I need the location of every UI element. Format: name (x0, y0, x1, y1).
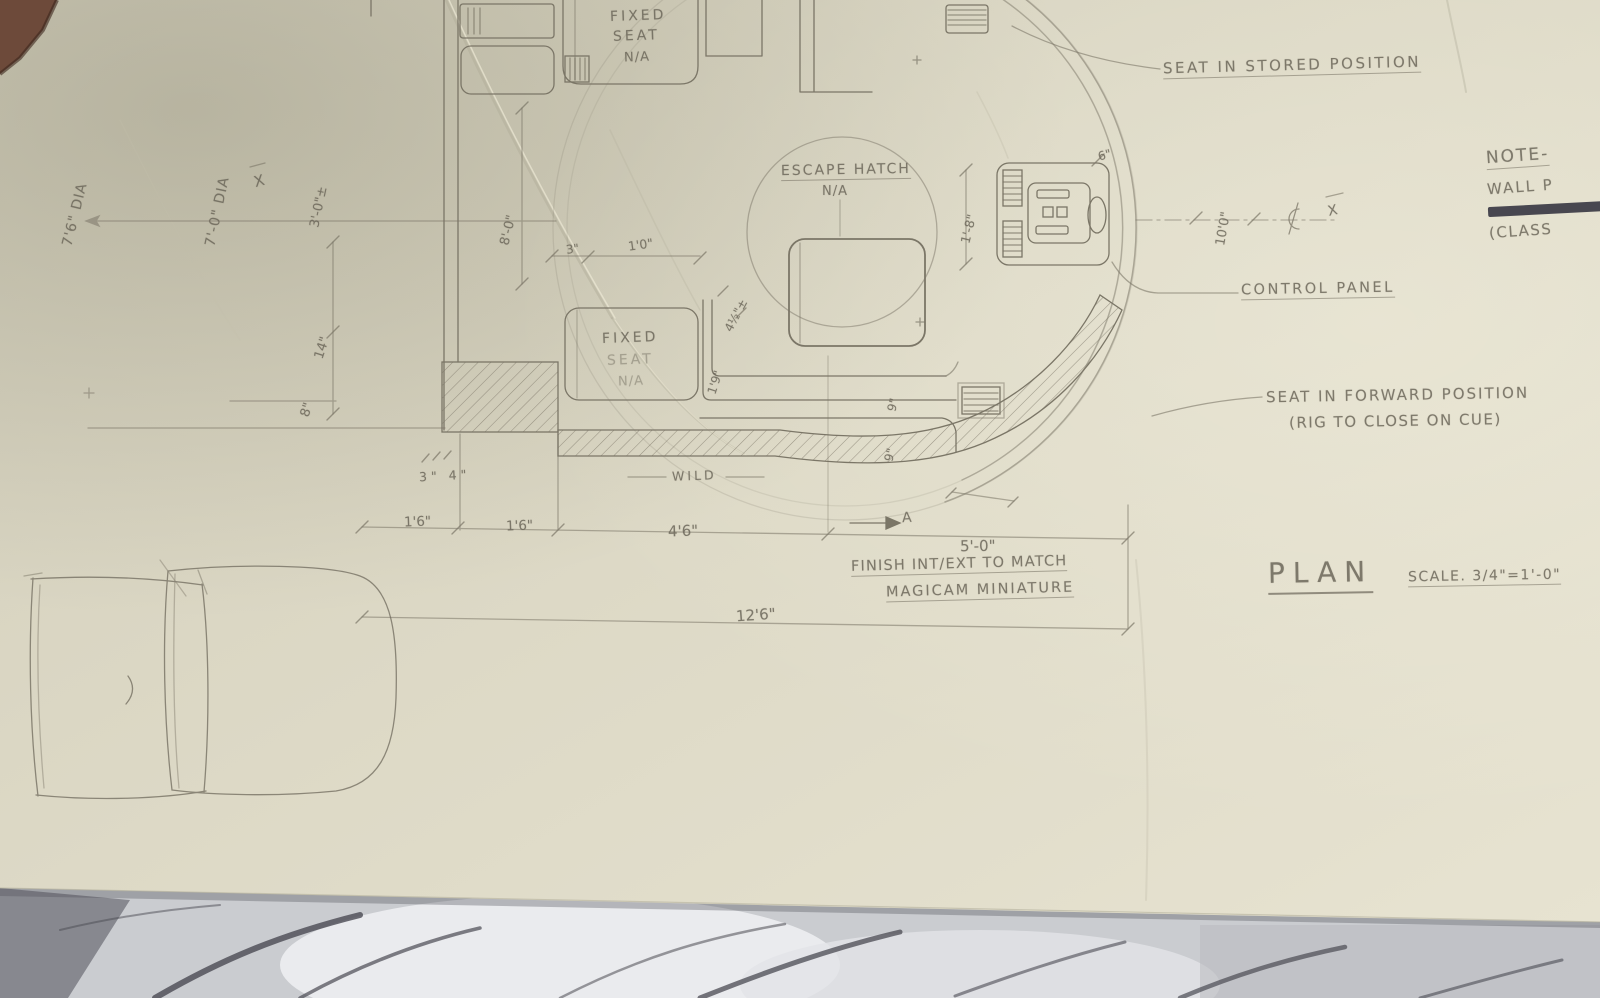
label-fixed-seat-top-2: SEAT (613, 27, 660, 45)
label-seat-forward-2: (RIG TO CLOSE ON CUE) (1289, 410, 1502, 432)
dim-1ft6-b: 1'6" (506, 518, 534, 535)
dim-6in: 6" (1096, 147, 1112, 164)
dim-10ft: 10'0" (1213, 211, 1234, 247)
ink-redaction-bar (1488, 201, 1600, 217)
dim-3in: 3" (565, 241, 580, 257)
dim-9in-upper: 9" (884, 397, 901, 413)
dim-dia-outer: 7'6" DIA (59, 181, 90, 248)
label-fixed-seat-top-1: FIXED (610, 7, 667, 25)
dim-9in-lower: 9" (881, 447, 898, 463)
label-note-line2: (CLASS (1488, 220, 1552, 242)
label-note-line1: WALL P (1486, 176, 1554, 199)
label-escape-hatch: ESCAPE HATCH (781, 161, 911, 181)
dim-1ft0: 1'0" (627, 235, 654, 253)
label-wild: WILD (672, 467, 717, 484)
label-escape-hatch-na: N/A (822, 184, 848, 199)
label-seat-forward-1: SEAT IN FORWARD POSITION (1266, 384, 1529, 407)
dim-3ft-offset: 3'-0"± (307, 185, 330, 229)
label-fixed-seat-mid-3: N/A (618, 374, 645, 390)
dim-dia-inner: 7'-0" DIA (202, 175, 232, 248)
dim-14in: 14" (312, 335, 333, 361)
dim-1ft9-left: 1'9" (705, 369, 726, 396)
label-control-panel: CONTROL PANEL (1241, 280, 1395, 301)
label-fixed-seat-mid-2: SEAT (607, 351, 654, 369)
label-finish-1: FINISH INT/EXT TO MATCH (851, 553, 1068, 577)
label-seat-stored: SEAT IN STORED POSITION (1163, 53, 1421, 80)
label-plan-scale: SCALE. 3/4"=1'-0" (1408, 567, 1561, 588)
label-finish-2: MAGICAM MINIATURE (886, 580, 1075, 603)
dim-1ft6-a: 1'6" (404, 514, 432, 531)
dim-8ft: 8'-0" (497, 213, 519, 247)
label-section-a: A (902, 510, 912, 526)
annotation-layer: SEAT IN STORED POSITION NOTE- WALL P (CL… (0, 0, 1600, 998)
label-fixed-seat-top-3: N/A (624, 50, 651, 66)
dim-4ft6: 4'6" (668, 521, 699, 540)
blueprint-photo: SEAT IN STORED POSITION NOTE- WALL P (CL… (0, 0, 1600, 998)
label-fixed-seat-mid-1: FIXED (602, 329, 659, 347)
dim-4half: 4½"± (722, 297, 751, 334)
label-axis-x: X (252, 171, 267, 191)
dim-3in-4in: 3" 4" (419, 467, 471, 485)
dim-12ft6: 12'6" (735, 605, 776, 626)
label-plan-title: PLAN (1268, 555, 1374, 595)
label-centerline-x: X (1326, 202, 1339, 220)
dim-5ft0: 5'-0" (960, 537, 996, 556)
label-note-title: NOTE- (1485, 144, 1550, 170)
dim-8in: 8" (298, 401, 317, 419)
dim-1ft8: 1'-8" (957, 213, 979, 245)
